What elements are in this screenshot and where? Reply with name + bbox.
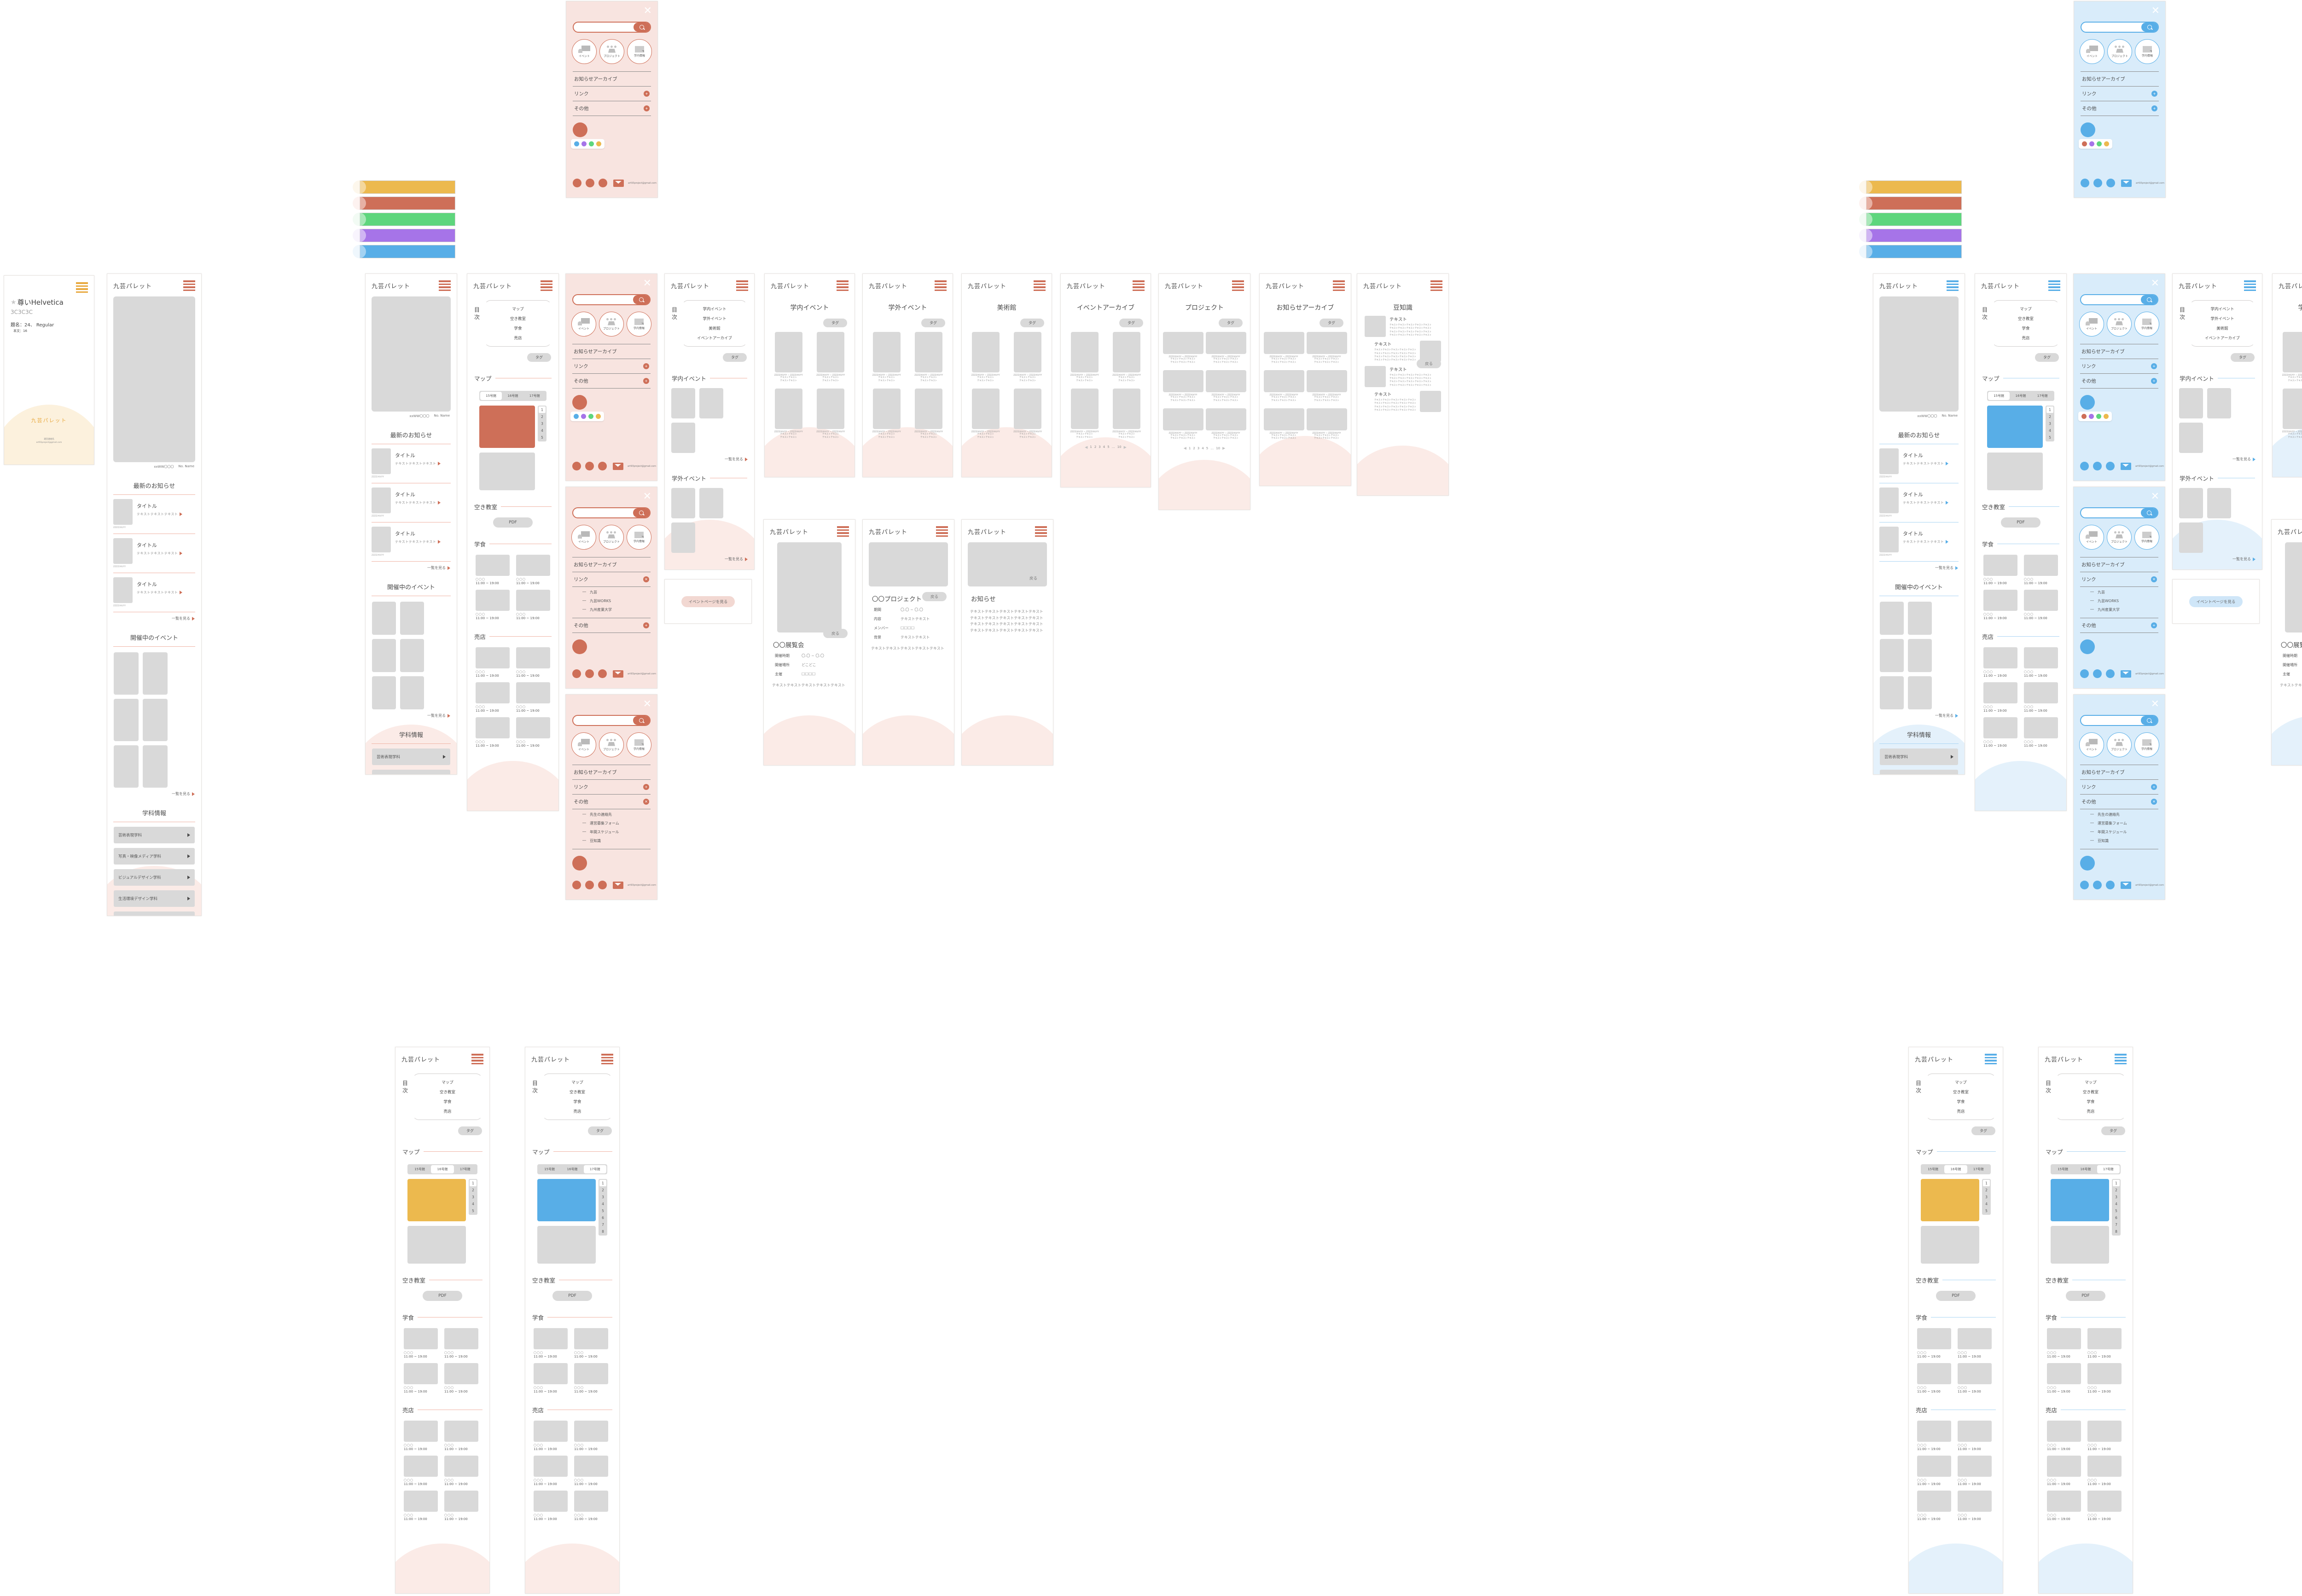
- pager-item[interactable]: 3: [2046, 420, 2053, 427]
- artboard-detail[interactable]: 九芸パレット〇〇展覧会開催時期〇.〇 ~ 〇.〇開催場所どこどこ主催□□□□テキ…: [763, 519, 855, 766]
- menu-item-archive[interactable]: お知らせアーカイブ: [2080, 344, 2158, 359]
- page-number[interactable]: …: [1112, 445, 1115, 449]
- pager-item[interactable]: 5: [2113, 1207, 2120, 1214]
- pager-item[interactable]: 1: [1983, 1180, 1990, 1186]
- event-tile[interactable]: [400, 676, 424, 709]
- event-tile[interactable]: [1908, 602, 1932, 635]
- shop-card[interactable]: 〇〇〇11:00 ~ 19:00: [1958, 1491, 1992, 1521]
- artboard-menu-overlay[interactable]: ✕イベントプロジェクト学内情報お知らせアーカイブリンク+その他✕―先生の連絡先―…: [565, 694, 657, 900]
- shop-card[interactable]: 〇〇〇11:00 ~ 19:00: [2047, 1328, 2081, 1358]
- menu-shortcut[interactable]: プロジェクト: [599, 525, 624, 550]
- shop-card[interactable]: 〇〇〇11:00 ~ 19:00: [2087, 1421, 2122, 1451]
- artboard-menu-overlay[interactable]: ✕イベントプロジェクト学内情報お知らせアーカイブリンク+その他+art93pro…: [2074, 1, 2166, 198]
- pager-item[interactable]: 2: [2046, 413, 2053, 420]
- shop-card[interactable]: 〇〇〇11:00 ~ 19:00: [444, 1363, 478, 1393]
- event-tile[interactable]: [400, 602, 424, 635]
- page-number[interactable]: 1: [1090, 445, 1092, 449]
- pager-item[interactable]: 1: [2046, 406, 2053, 413]
- toc-item[interactable]: 学食: [485, 325, 551, 331]
- menu-item-other[interactable]: その他✕: [572, 795, 651, 809]
- pagination[interactable]: ◀12345…10▶: [1159, 446, 1250, 450]
- toc-item[interactable]: 学食: [1926, 1099, 1995, 1104]
- pager-item[interactable]: 6: [599, 1214, 606, 1221]
- shop-card[interactable]: 〇〇〇11:00 ~ 19:00: [574, 1328, 608, 1358]
- tag-button[interactable]: タグ: [1119, 319, 1143, 327]
- artboard-campus-info[interactable]: 九芸パレット目次マップ空き教室学食売店タグマップ15号館16号館17号館 123…: [525, 1047, 620, 1594]
- tab-building[interactable]: 17号館: [2097, 1165, 2120, 1173]
- mail-icon[interactable]: [2121, 463, 2131, 470]
- project-card[interactable]: ZZZZ/XX/YY ~ ZZZZ/XX/YYテキストテキストテキストテキストテ…: [1307, 370, 1347, 403]
- floor-map[interactable]: [537, 1226, 596, 1264]
- close-icon[interactable]: ✕: [643, 699, 651, 709]
- menu-shortcut[interactable]: イベント: [571, 312, 596, 337]
- social-icon[interactable]: [2106, 669, 2115, 678]
- tab-building[interactable]: 17号館: [2032, 392, 2053, 400]
- toc-item[interactable]: マップ: [2056, 1079, 2125, 1085]
- expand-icon[interactable]: +: [643, 378, 649, 384]
- shop-card[interactable]: 〇〇〇11:00 ~ 19:00: [476, 717, 510, 748]
- menu-icon[interactable]: [439, 280, 451, 291]
- tag-button[interactable]: タグ: [2231, 353, 2255, 362]
- shop-card[interactable]: 〇〇〇11:00 ~ 19:00: [2024, 682, 2058, 713]
- close-icon[interactable]: ✕: [2151, 492, 2159, 502]
- submenu-item[interactable]: ―九芸: [582, 588, 651, 597]
- toc-item[interactable]: 空き教室: [2056, 1089, 2125, 1095]
- menu-icon[interactable]: [1034, 280, 1046, 291]
- menu-icon[interactable]: [541, 280, 552, 291]
- list-item[interactable]: タイトル テキストテキストテキスト: [366, 444, 457, 475]
- toc-item[interactable]: 空き教室: [485, 316, 551, 321]
- color-dot[interactable]: [2096, 414, 2101, 419]
- artboard-home[interactable]: 九芸パレットxxWW〇〇〇No. Name最新のお知らせ タイトル テキストテキ…: [107, 273, 202, 916]
- menu-shortcut[interactable]: イベント: [571, 525, 596, 550]
- menu-item-other[interactable]: その他✕: [2080, 795, 2158, 809]
- tab-building[interactable]: 16号館: [2074, 1165, 2097, 1173]
- event-tile[interactable]: [372, 602, 396, 635]
- see-all-link[interactable]: 一覧を見る: [665, 453, 754, 462]
- menu-icon[interactable]: [1035, 526, 1047, 537]
- artboard-campus-info[interactable]: 九芸パレット目次マップ空き教室学食売店タグマップ15号館16号館17号館 123…: [1975, 273, 2067, 811]
- color-dot[interactable]: [2104, 414, 2109, 419]
- search-bar[interactable]: [2080, 294, 2158, 305]
- pager-item[interactable]: 3: [599, 1194, 606, 1200]
- mail-icon[interactable]: [613, 670, 623, 678]
- menu-shortcut[interactable]: プロジェクト: [2107, 732, 2132, 757]
- menu-item-archive[interactable]: お知らせアーカイブ: [572, 765, 651, 780]
- menu-shortcut[interactable]: イベント: [571, 732, 596, 757]
- social-icon[interactable]: [598, 462, 607, 470]
- artboard-campus-info[interactable]: 九芸パレット目次マップ空き教室学食売店タグマップ15号館16号館17号館 123…: [1908, 1047, 2003, 1594]
- shop-card[interactable]: 〇〇〇11:00 ~ 19:00: [2024, 555, 2058, 585]
- mail-icon[interactable]: [2121, 882, 2131, 889]
- color-dot[interactable]: [574, 414, 579, 419]
- event-tile[interactable]: [2207, 388, 2231, 418]
- event-card[interactable]: ZZZZ/XX/YY ~ ZZZZ/XX/YYテキストテキストテキストテキスト: [772, 389, 805, 440]
- event-card[interactable]: ZZZZ/XX/YY ~ ZZZZ/XX/YYテキストテキストテキストテキスト: [1068, 332, 1101, 383]
- menu-item-other[interactable]: その他+: [572, 618, 651, 633]
- toc-item[interactable]: 空き教室: [413, 1089, 482, 1095]
- menu-shortcut[interactable]: イベント: [2079, 312, 2104, 337]
- artboard-menu-overlay[interactable]: ✕イベントプロジェクト学内情報お知らせアーカイブリンク✕―九芸―九芸WORKS―…: [2073, 487, 2165, 689]
- pager-item[interactable]: 4: [2113, 1201, 2120, 1207]
- search-button[interactable]: [633, 508, 650, 517]
- color-dot[interactable]: [2089, 414, 2094, 419]
- mail-icon[interactable]: [613, 463, 623, 470]
- shop-card[interactable]: 〇〇〇11:00 ~ 19:00: [404, 1328, 438, 1358]
- event-card[interactable]: ZZZZ/XX/YY ~ ZZZZ/XX/YYテキストテキストテキストテキスト: [969, 389, 1002, 440]
- shop-card[interactable]: 〇〇〇11:00 ~ 19:00: [2024, 717, 2058, 748]
- menu-shortcut[interactable]: 学内情報: [627, 39, 652, 64]
- menu-item-other[interactable]: その他+: [572, 374, 651, 389]
- shop-card[interactable]: 〇〇〇11:00 ~ 19:00: [574, 1491, 608, 1521]
- color-dot[interactable]: [596, 414, 601, 419]
- list-item[interactable]: タイトル テキストテキストテキスト: [107, 495, 201, 526]
- search-button[interactable]: [633, 295, 650, 304]
- menu-item-link[interactable]: リンク✕: [2080, 572, 2158, 587]
- pager-item[interactable]: 1: [539, 406, 546, 413]
- toc-item[interactable]: イベントアーカイブ: [682, 335, 747, 341]
- artboard-menu-overlay[interactable]: ✕イベントプロジェクト学内情報お知らせアーカイブリンク+その他+art93pro…: [566, 1, 658, 198]
- page-number[interactable]: 10: [1216, 447, 1220, 450]
- shop-card[interactable]: 〇〇〇11:00 ~ 19:00: [1983, 555, 2017, 585]
- submenu-item[interactable]: ―運営募集フォーム: [2090, 819, 2158, 828]
- artboard-list-page[interactable]: 九芸パレットお知らせアーカイブタグ ZZZZ/XX/YY ~ ZZZZ/XX/Y…: [1259, 273, 1351, 486]
- search-input[interactable]: [573, 716, 633, 725]
- collapse-icon[interactable]: ✕: [2151, 576, 2157, 582]
- color-dot[interactable]: [2089, 141, 2094, 146]
- pager-item[interactable]: 5: [470, 1207, 477, 1214]
- toc-item[interactable]: 空き教室: [1926, 1089, 1995, 1095]
- pager-item[interactable]: 3: [470, 1194, 477, 1200]
- shop-card[interactable]: 〇〇〇11:00 ~ 19:00: [1917, 1363, 1951, 1393]
- event-tile[interactable]: [2207, 488, 2231, 518]
- event-card[interactable]: ZZZZ/XX/YY ~ ZZZZ/XX/YYテキストテキストテキストテキスト: [1110, 389, 1143, 440]
- pager-item[interactable]: 6: [2113, 1214, 2120, 1221]
- menu-item-other[interactable]: その他+: [2080, 374, 2158, 389]
- event-tile[interactable]: [671, 423, 695, 453]
- menu-shortcut[interactable]: イベント: [2079, 525, 2104, 550]
- pdf-button[interactable]: PDF: [552, 1291, 592, 1301]
- menu-icon[interactable]: [1333, 280, 1345, 291]
- project-card[interactable]: ZZZZ/XX/YY ~ ZZZZ/XX/YYテキストテキストテキストテキストテ…: [1163, 370, 1203, 403]
- page-number[interactable]: 5: [1206, 447, 1208, 450]
- mail-icon[interactable]: [613, 882, 623, 889]
- menu-shortcut[interactable]: イベント: [2079, 732, 2104, 757]
- submenu-item[interactable]: ―豆知識: [582, 836, 651, 845]
- tab-building[interactable]: 16号館: [561, 1165, 583, 1173]
- artboard-menu-overlay[interactable]: ✕イベントプロジェクト学内情報お知らせアーカイブリンク+その他+art93pro…: [565, 273, 657, 481]
- project-card[interactable]: ZZZZ/XX/YY ~ ZZZZ/XX/YYテキストテキストテキストテキストテ…: [1307, 332, 1347, 365]
- building-tabs[interactable]: 15号館16号館17号館: [1987, 391, 2054, 401]
- department-button[interactable]: ビジュアルデザイン学科: [114, 869, 195, 886]
- submenu-item[interactable]: ―九芸WORKS: [582, 597, 651, 605]
- project-card[interactable]: ZZZZ/XX/YY ~ ZZZZ/XX/YYテキストテキストテキストテキストテ…: [1206, 408, 1246, 441]
- pdf-button[interactable]: PDF: [493, 517, 533, 528]
- search-button[interactable]: [2141, 508, 2157, 517]
- menu-item-link[interactable]: リンク+: [2080, 780, 2158, 795]
- toc-item[interactable]: 売店: [1926, 1108, 1995, 1114]
- menu-shortcut[interactable]: 学内情報: [627, 732, 651, 757]
- list-item[interactable]: タイトル テキストテキストテキスト: [1873, 522, 1965, 553]
- artboard-trivia[interactable]: 九芸パレット豆知識 テキスト テキストテキストテキストテキストテキストテキストテ…: [1357, 273, 1449, 496]
- menu-item-other[interactable]: その他+: [2080, 618, 2158, 633]
- shop-card[interactable]: 〇〇〇11:00 ~ 19:00: [444, 1328, 478, 1358]
- pager-item[interactable]: 5: [539, 434, 546, 441]
- menu-shortcut[interactable]: プロジェクト: [2107, 39, 2132, 64]
- search-input[interactable]: [2081, 295, 2141, 304]
- toc-item[interactable]: 美術館: [682, 325, 747, 331]
- menu-item-link[interactable]: リンク+: [572, 359, 651, 374]
- event-card[interactable]: ZZZZ/XX/YY ~ ZZZZ/XX/YYテキストテキストテキストテキスト: [870, 332, 903, 383]
- building-tabs[interactable]: 15号館16号館17号館: [407, 1164, 477, 1174]
- event-card[interactable]: ZZZZ/XX/YY ~ ZZZZ/XX/YYテキストテキストテキストテキスト: [912, 332, 945, 383]
- back-button[interactable]: 戻る: [922, 592, 947, 601]
- shop-card[interactable]: 〇〇〇11:00 ~ 19:00: [444, 1421, 478, 1451]
- menu-shortcut[interactable]: プロジェクト: [2107, 525, 2132, 550]
- pager-item[interactable]: 1: [2113, 1180, 2120, 1186]
- menu-item-link[interactable]: リンク✕: [572, 572, 651, 587]
- pdf-button[interactable]: PDF: [423, 1291, 462, 1301]
- toc-item[interactable]: 美術館: [2190, 325, 2255, 331]
- toc-item[interactable]: マップ: [543, 1079, 612, 1085]
- toc-item[interactable]: 学外イベント: [682, 316, 747, 321]
- search-bar[interactable]: [2081, 22, 2159, 33]
- event-tile[interactable]: [671, 488, 695, 518]
- project-card[interactable]: ZZZZ/XX/YY ~ ZZZZ/XX/YYテキストテキストテキストテキストテ…: [1163, 332, 1203, 365]
- event-tile[interactable]: [1880, 639, 1904, 672]
- list-item[interactable]: タイトル テキストテキストテキスト: [1873, 483, 1965, 514]
- event-tile[interactable]: [114, 652, 139, 695]
- menu-shortcut[interactable]: イベント: [2080, 39, 2104, 64]
- shop-card[interactable]: 〇〇〇11:00 ~ 19:00: [444, 1491, 478, 1521]
- shop-card[interactable]: 〇〇〇11:00 ~ 19:00: [1958, 1456, 1992, 1486]
- theme-color-circle[interactable]: [572, 639, 587, 654]
- event-card[interactable]: ZZZZ/XX/YY ~ ZZZZ/XX/YYテキストテキストテキストテキスト: [814, 389, 847, 440]
- event-tile[interactable]: [699, 388, 723, 418]
- page-number[interactable]: 4: [1202, 447, 1203, 450]
- color-dot[interactable]: [2082, 141, 2087, 146]
- floor-pager[interactable]: 12345: [2046, 406, 2054, 441]
- submenu-item[interactable]: ―運営募集フォーム: [582, 819, 651, 828]
- shop-card[interactable]: 〇〇〇11:00 ~ 19:00: [404, 1363, 438, 1393]
- pager-item[interactable]: 8: [2113, 1228, 2120, 1235]
- shop-card[interactable]: 〇〇〇11:00 ~ 19:00: [2087, 1363, 2122, 1393]
- event-tile[interactable]: [699, 488, 723, 518]
- event-card[interactable]: ZZZZ/XX/YY ~ ZZZZ/XX/YYテキストテキストテキストテキスト: [1068, 389, 1101, 440]
- see-all-link[interactable]: 一覧を見る: [1873, 562, 1965, 570]
- submenu-item[interactable]: ―先生の連絡先: [582, 810, 651, 819]
- submenu-item[interactable]: ―九州産業大学: [582, 605, 651, 614]
- search-bar[interactable]: [572, 715, 651, 726]
- artboard-campus-info[interactable]: 九芸パレット目次マップ空き教室学食売店タグマップ15号館16号館17号館 123…: [467, 273, 559, 811]
- close-icon[interactable]: ✕: [2151, 279, 2159, 289]
- tab-building[interactable]: 16号館: [431, 1165, 453, 1173]
- menu-icon[interactable]: [471, 1054, 483, 1064]
- submenu-item[interactable]: ―豆知識: [2090, 836, 2158, 845]
- close-icon[interactable]: ✕: [2151, 6, 2160, 16]
- toc-item[interactable]: マップ: [1926, 1079, 1995, 1085]
- shop-card[interactable]: 〇〇〇11:00 ~ 19:00: [2087, 1456, 2122, 1486]
- expand-icon[interactable]: +: [2151, 105, 2157, 111]
- social-icon[interactable]: [2106, 462, 2115, 470]
- theme-color-circle[interactable]: [572, 395, 587, 410]
- submenu-item[interactable]: ―九芸: [2090, 588, 2158, 597]
- pager-item[interactable]: 4: [2046, 427, 2053, 434]
- menu-item-link[interactable]: リンク+: [2080, 359, 2158, 374]
- pager-item[interactable]: 5: [1983, 1207, 1990, 1214]
- menu-shortcut[interactable]: プロジェクト: [599, 312, 624, 337]
- project-card[interactable]: ZZZZ/XX/YY ~ ZZZZ/XX/YYテキストテキストテキストテキストテ…: [1206, 332, 1246, 365]
- event-tile[interactable]: [1880, 602, 1904, 635]
- color-dot[interactable]: [581, 414, 586, 419]
- pager-item[interactable]: 1: [470, 1180, 477, 1186]
- artboard-list-page[interactable]: 九芸パレット学外イベントタグ ZZZZ/XX/YY ~ ZZZZ/XX/YYテキ…: [862, 273, 953, 477]
- expand-icon[interactable]: +: [2151, 91, 2157, 97]
- project-card[interactable]: ZZZZ/XX/YY ~ ZZZZ/XX/YYテキストテキストテキストテキストテ…: [1264, 332, 1304, 365]
- social-icon[interactable]: [598, 669, 607, 678]
- pdf-button[interactable]: PDF: [2001, 517, 2040, 528]
- artboard-detail[interactable]: 九芸パレット〇〇展覧会開催時期〇.〇 ~ 〇.〇開催場所どこどこ主催□□□□テキ…: [2271, 519, 2302, 766]
- event-tile[interactable]: [114, 699, 139, 741]
- see-all-link[interactable]: 一覧を見る: [366, 562, 457, 570]
- pager-item[interactable]: 2: [470, 1187, 477, 1193]
- shop-card[interactable]: 〇〇〇11:00 ~ 19:00: [534, 1491, 568, 1521]
- shop-card[interactable]: 〇〇〇11:00 ~ 19:00: [1983, 717, 2017, 748]
- pager-item[interactable]: 4: [1983, 1201, 1990, 1207]
- floor-pager[interactable]: 12345678: [599, 1179, 607, 1236]
- back-button[interactable]: 戻る: [1021, 574, 1046, 583]
- project-card[interactable]: ZZZZ/XX/YY ~ ZZZZ/XX/YYテキストテキストテキストテキストテ…: [1307, 408, 1347, 441]
- color-dot[interactable]: [2081, 414, 2087, 419]
- shop-card[interactable]: 〇〇〇11:00 ~ 19:00: [476, 647, 510, 678]
- submenu-item[interactable]: ―年間スケジュール: [582, 828, 651, 836]
- tag-button[interactable]: タグ: [588, 1126, 612, 1135]
- tab-building[interactable]: 15号館: [480, 392, 502, 400]
- search-bar[interactable]: [2080, 507, 2158, 518]
- color-dot[interactable]: [588, 414, 593, 419]
- floor-pager[interactable]: 12345: [1982, 1179, 1991, 1215]
- collapse-icon[interactable]: ✕: [643, 799, 649, 805]
- pager-item[interactable]: 5: [2046, 434, 2053, 441]
- artboard-home[interactable]: 九芸パレットxxWW〇〇〇No. Name最新のお知らせ タイトル テキストテキ…: [365, 273, 457, 775]
- tab-building[interactable]: 15号館: [1922, 1165, 1944, 1173]
- shop-card[interactable]: 〇〇〇11:00 ~ 19:00: [516, 717, 550, 748]
- artboard-detail[interactable]: 九芸パレットお知らせテキストテキストテキストテキストテキストテキストテキストテキ…: [961, 519, 1053, 766]
- shop-card[interactable]: 〇〇〇11:00 ~ 19:00: [516, 590, 550, 620]
- expand-icon[interactable]: +: [643, 622, 649, 628]
- floor-map[interactable]: [407, 1226, 466, 1264]
- menu-icon[interactable]: [1985, 1054, 1997, 1064]
- event-card[interactable]: ZZZZ/XX/YY ~ ZZZZ/XX/YYテキストテキストテキストテキスト: [2280, 389, 2302, 440]
- tag-button[interactable]: タグ: [1219, 319, 1243, 327]
- menu-item-other[interactable]: その他+: [2081, 101, 2159, 116]
- toc-item[interactable]: 学食: [543, 1099, 612, 1104]
- list-item[interactable]: タイトル テキストテキストテキスト: [366, 483, 457, 514]
- event-tile[interactable]: [400, 639, 424, 672]
- artboard-campus-info[interactable]: 九芸パレット目次マップ空き教室学食売店タグマップ15号館16号館17号館 123…: [395, 1047, 490, 1594]
- mail-icon[interactable]: [2121, 180, 2132, 187]
- shop-card[interactable]: 〇〇〇11:00 ~ 19:00: [2087, 1328, 2122, 1358]
- menu-icon[interactable]: [2048, 280, 2060, 291]
- expand-icon[interactable]: +: [643, 784, 649, 790]
- shop-card[interactable]: 〇〇〇11:00 ~ 19:00: [1917, 1421, 1951, 1451]
- tag-button[interactable]: タグ: [921, 319, 945, 327]
- floor-map[interactable]: [479, 406, 535, 448]
- theme-color-circle[interactable]: [2080, 639, 2095, 654]
- menu-shortcut[interactable]: 学内情報: [627, 312, 651, 337]
- expand-icon[interactable]: +: [2151, 363, 2157, 369]
- menu-icon[interactable]: [2115, 1054, 2127, 1064]
- department-button[interactable]: 芸術表現学科: [1880, 749, 1958, 765]
- department-button[interactable]: ソーシャルデザイン学科: [114, 911, 195, 916]
- event-page-button[interactable]: イベントページを見る: [2173, 580, 2259, 623]
- tab-building[interactable]: 17号館: [584, 1165, 606, 1173]
- menu-icon[interactable]: [736, 280, 748, 291]
- event-tile[interactable]: [2179, 522, 2203, 553]
- page-number[interactable]: 3: [1198, 447, 1199, 450]
- pager-item[interactable]: 2: [539, 413, 546, 420]
- tab-building[interactable]: 16号館: [2010, 392, 2031, 400]
- pager-item[interactable]: 4: [599, 1201, 606, 1207]
- shop-card[interactable]: 〇〇〇11:00 ~ 19:00: [1983, 590, 2017, 620]
- event-tile[interactable]: [372, 639, 396, 672]
- mail-icon[interactable]: [613, 180, 624, 187]
- expand-icon[interactable]: +: [644, 105, 650, 111]
- pager-item[interactable]: 2: [599, 1187, 606, 1193]
- shop-card[interactable]: 〇〇〇11:00 ~ 19:00: [1983, 682, 2017, 713]
- color-dot[interactable]: [574, 141, 579, 146]
- menu-shortcut[interactable]: プロジェクト: [599, 732, 624, 757]
- department-button[interactable]: 写真・映像メディア学科: [1880, 770, 1958, 775]
- back-button[interactable]: 戻る: [1417, 359, 1441, 368]
- department-button[interactable]: 芸術表現学科: [114, 827, 195, 843]
- event-tile[interactable]: [671, 388, 695, 418]
- shop-card[interactable]: 〇〇〇11:00 ~ 19:00: [1983, 647, 2017, 678]
- shop-card[interactable]: 〇〇〇11:00 ~ 19:00: [404, 1491, 438, 1521]
- shop-card[interactable]: 〇〇〇11:00 ~ 19:00: [516, 682, 550, 713]
- menu-icon[interactable]: [76, 282, 88, 293]
- see-all-link[interactable]: 一覧を見る: [107, 788, 201, 796]
- floor-pager[interactable]: 12345678: [2112, 1179, 2121, 1236]
- artboard-button-card[interactable]: イベントページを見る: [664, 579, 752, 624]
- shop-card[interactable]: 〇〇〇11:00 ~ 19:00: [2047, 1421, 2081, 1451]
- toc-item[interactable]: 売店: [1993, 335, 2059, 341]
- toc-item[interactable]: 空き教室: [543, 1089, 612, 1095]
- tab-building[interactable]: 16号館: [1944, 1165, 1967, 1173]
- menu-shortcut[interactable]: 学内情報: [2135, 39, 2160, 64]
- tab-building[interactable]: 15号館: [2052, 1165, 2074, 1173]
- search-button[interactable]: [633, 716, 650, 725]
- social-icon[interactable]: [585, 881, 594, 889]
- artboard-home[interactable]: 九芸パレットxxWW〇〇〇No. Name最新のお知らせ タイトル テキストテキ…: [1873, 273, 1965, 775]
- event-tile[interactable]: [1908, 639, 1932, 672]
- artboard-campus-info[interactable]: 九芸パレット目次マップ空き教室学食売店タグマップ15号館16号館17号館 123…: [2038, 1047, 2133, 1594]
- social-icon[interactable]: [2080, 669, 2089, 678]
- event-tile[interactable]: [1908, 676, 1932, 709]
- menu-item-archive[interactable]: お知らせアーカイブ: [2080, 765, 2158, 780]
- social-icon[interactable]: [572, 669, 581, 678]
- artboard-list-page[interactable]: 九芸パレットプロジェクトタグ ZZZZ/XX/YY ~ ZZZZ/XX/YYテキ…: [1158, 273, 1250, 510]
- menu-icon[interactable]: [1947, 280, 1959, 291]
- pager-item[interactable]: 7: [599, 1221, 606, 1228]
- search-input[interactable]: [573, 508, 633, 517]
- toc-item[interactable]: 売店: [413, 1108, 482, 1114]
- toc-item[interactable]: 売店: [543, 1108, 612, 1114]
- department-button[interactable]: 写真・映像メディア学科: [114, 848, 195, 865]
- shop-card[interactable]: 〇〇〇11:00 ~ 19:00: [1958, 1363, 1992, 1393]
- menu-shortcut[interactable]: イベント: [572, 39, 597, 64]
- shop-card[interactable]: 〇〇〇11:00 ~ 19:00: [534, 1328, 568, 1358]
